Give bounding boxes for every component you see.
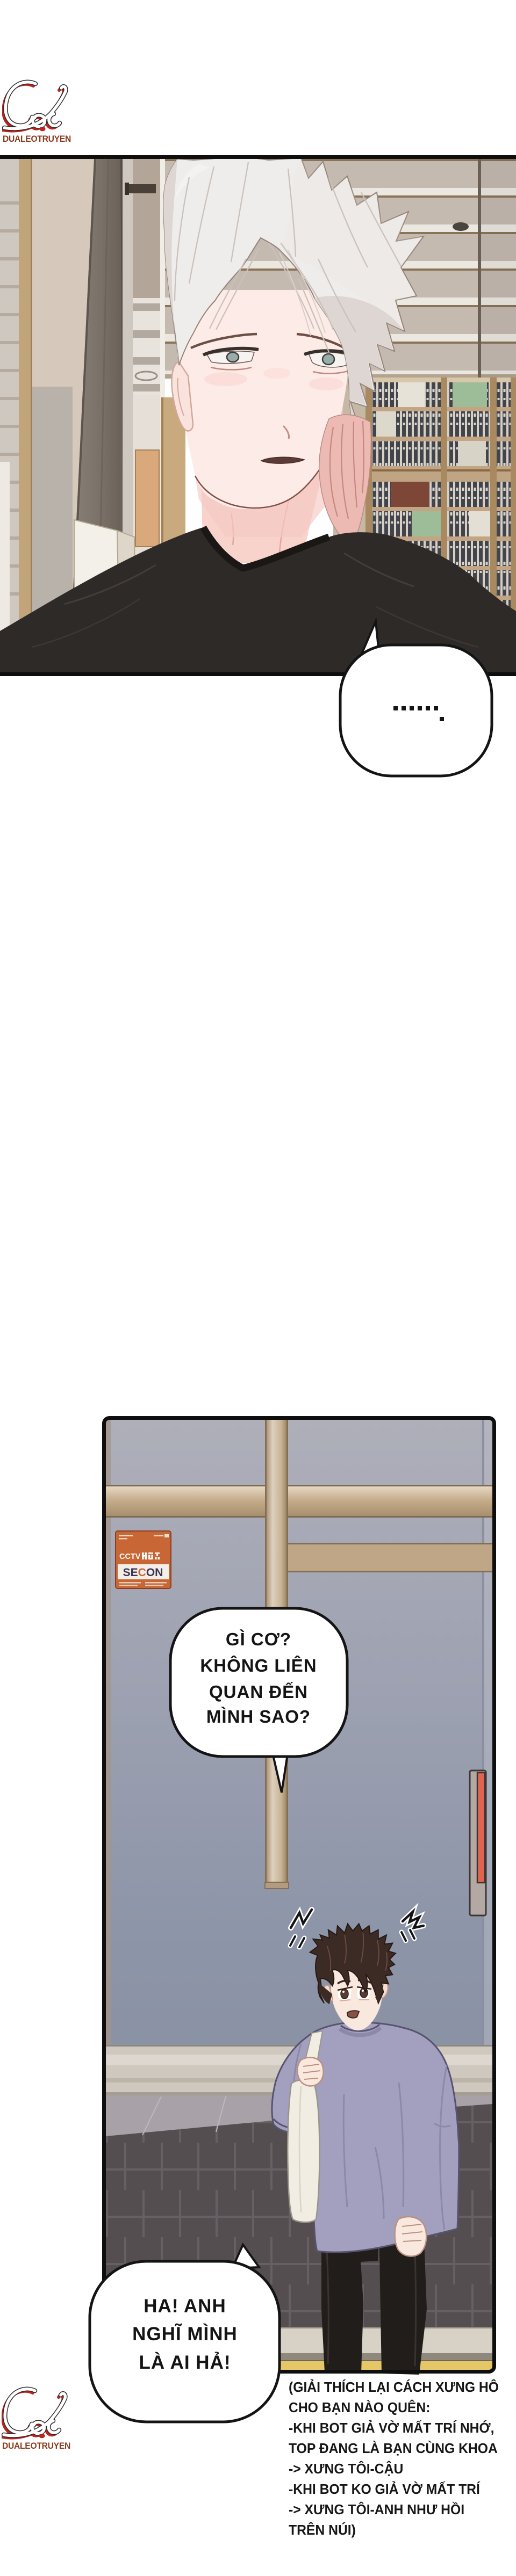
svg-text:DUALEOTRUYEN: DUALEOTRUYEN [2, 2441, 70, 2451]
svg-text:LÀ AI HẢ!: LÀ AI HẢ! [139, 2352, 231, 2373]
svg-text:DUALEOTRUYEN: DUALEOTRUYEN [3, 134, 71, 144]
svg-text:HA! ANH: HA! ANH [144, 2296, 226, 2317]
svg-text:NGHĨ MÌNH: NGHĨ MÌNH [132, 2323, 238, 2345]
